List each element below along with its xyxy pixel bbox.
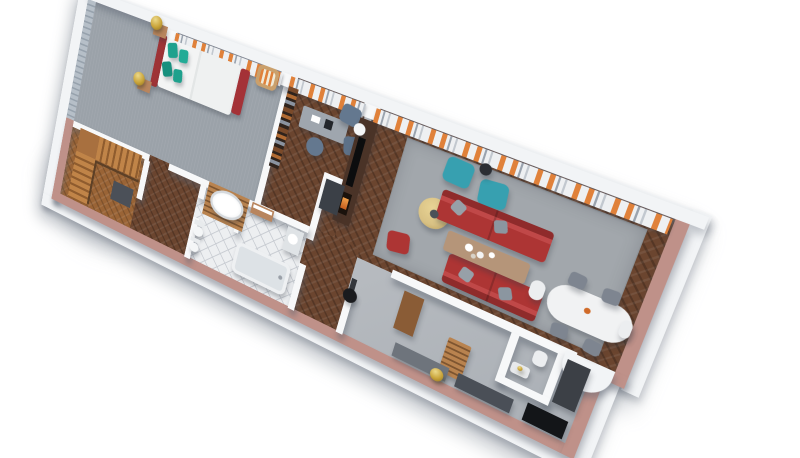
- bed-pillow-1: [167, 43, 177, 58]
- bed-pillow-2: [178, 49, 188, 64]
- sofa-1-pillow-2: [494, 220, 508, 234]
- bed-pillow-3: [162, 61, 173, 77]
- floorplan-render: [0, 0, 800, 458]
- sofa-2-pillow-2: [498, 287, 513, 300]
- apartment-plan: [60, 2, 678, 455]
- bed-pillow-4: [173, 69, 183, 84]
- plan-projection: [60, 2, 678, 455]
